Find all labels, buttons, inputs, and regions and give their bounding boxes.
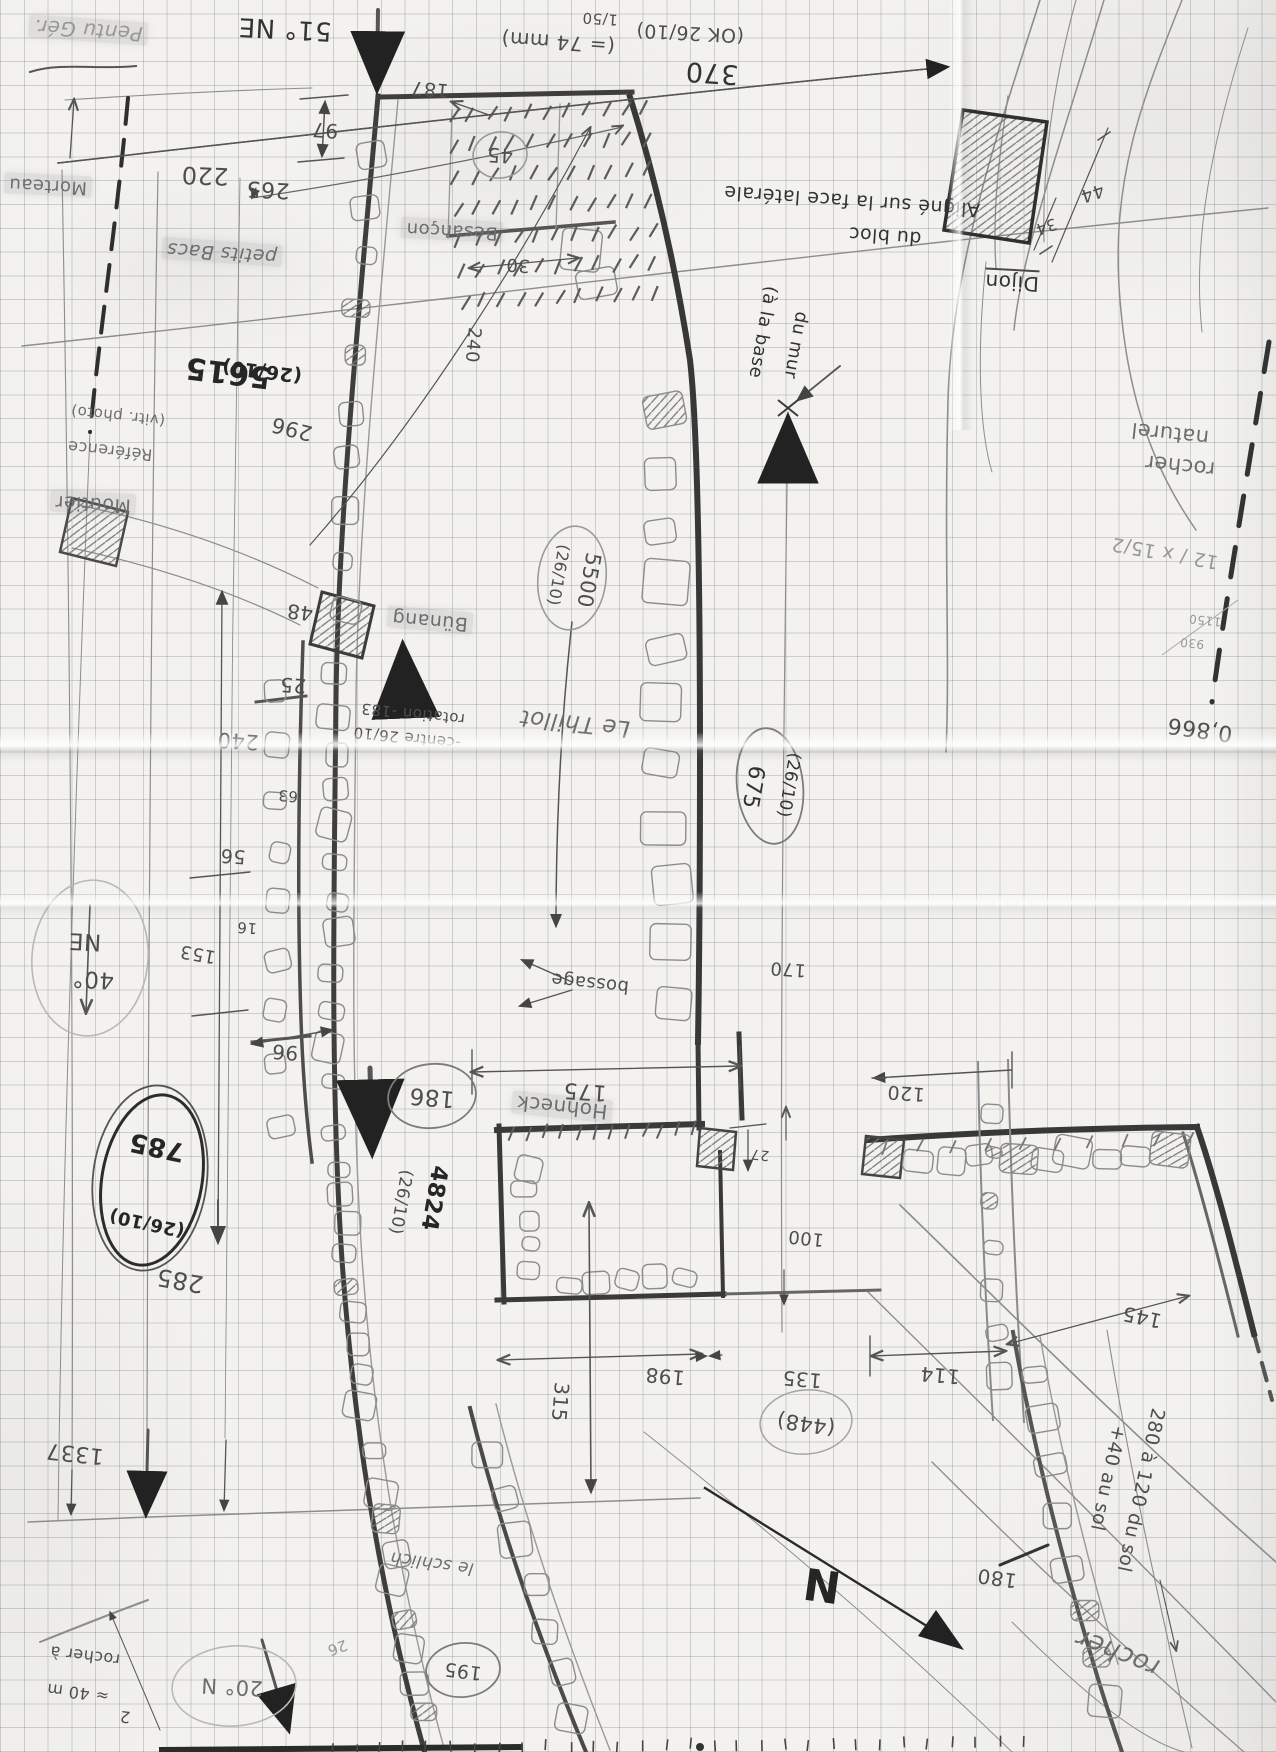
annotation-d27: 27 bbox=[750, 1146, 770, 1162]
annotation-f1150: 1150 bbox=[1188, 612, 1222, 628]
annotation-c195: 195 bbox=[443, 1658, 483, 1682]
annotation-b40: 40° bbox=[71, 965, 114, 991]
annotation-d170: 170 bbox=[769, 957, 806, 978]
annotation-d187: 187 bbox=[410, 77, 449, 100]
annotation-d240: 240 bbox=[216, 728, 259, 753]
dimension-lines bbox=[58, 10, 1188, 1730]
annotation-d180: 180 bbox=[976, 1565, 1018, 1591]
annotation-b20n: 20° N bbox=[200, 1673, 263, 1698]
annotation-d370: 370 bbox=[685, 56, 740, 88]
hatched-blocks bbox=[60, 110, 1047, 1178]
annotation-moutier: Moutier bbox=[50, 490, 137, 516]
annotation-d240v: 240 bbox=[461, 326, 483, 363]
annotation-d63: 63 bbox=[277, 786, 298, 803]
annotation-d56: 56 bbox=[220, 844, 247, 865]
annotation-n2: 2 bbox=[119, 1707, 132, 1725]
annotation-d100: 100 bbox=[787, 1226, 825, 1248]
annotation-d25: 25 bbox=[279, 674, 307, 697]
annotation-compass-n: N bbox=[800, 1559, 843, 1609]
annotation-d45: 45 bbox=[486, 144, 514, 166]
annotation-d114: 114 bbox=[919, 1363, 960, 1387]
pencil-sketch-drawing bbox=[0, 0, 1276, 1752]
annotation-dijon: Dijon bbox=[984, 268, 1039, 295]
annotation-c186: 186 bbox=[408, 1082, 455, 1110]
annotation-d315: 315 bbox=[548, 1381, 572, 1422]
wall-outlines bbox=[30, 66, 1254, 1752]
annotation-d135: 135 bbox=[781, 1367, 822, 1391]
annotation-f930: 930 bbox=[1179, 636, 1205, 651]
annotation-d96: 96 bbox=[271, 1041, 299, 1064]
annotation-morteau: Morteau bbox=[4, 172, 93, 197]
graph-paper-sheet: Pentu Gér.Morteau22051° NE97265187(= 74 … bbox=[0, 0, 1276, 1752]
annotation-d220: 220 bbox=[181, 162, 229, 189]
annotation-d198: 198 bbox=[644, 1364, 685, 1388]
annotation-d265: 265 bbox=[246, 175, 291, 200]
annotation-b40b: NE bbox=[68, 927, 102, 953]
annotation-aligne2: du bloc bbox=[848, 223, 922, 248]
annotation-ok2610: (OK 26/10) bbox=[636, 19, 745, 44]
annotation-b51ne: 51° NE bbox=[238, 12, 333, 44]
annotation-d97: 97 bbox=[311, 119, 339, 142]
compass-and-marks bbox=[696, 400, 1238, 1751]
annotation-d1337: 1337 bbox=[45, 1438, 105, 1467]
stone-sketches bbox=[262, 140, 1191, 1735]
annotation-d16: 16 bbox=[236, 919, 257, 936]
annotation-d120: 120 bbox=[886, 1081, 925, 1103]
annotation-d285: 285 bbox=[155, 1264, 206, 1297]
annotation-d48: 48 bbox=[286, 600, 315, 624]
annotation-s150: 1/50 bbox=[582, 9, 619, 27]
annotation-d30: 30 bbox=[505, 254, 530, 274]
annotation-besancon: Besançon bbox=[401, 217, 504, 243]
